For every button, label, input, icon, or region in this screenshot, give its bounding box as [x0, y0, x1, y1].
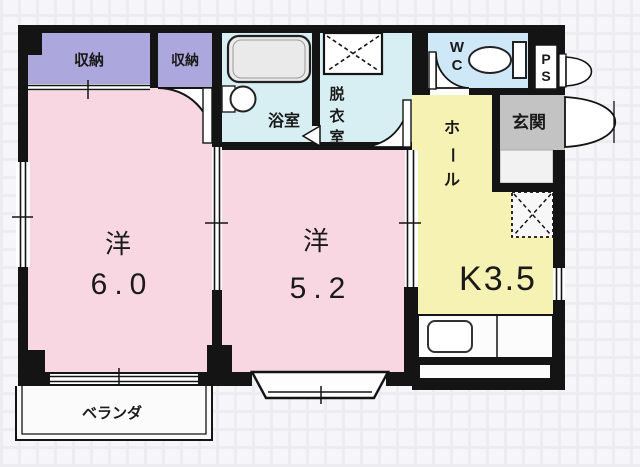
svg-text:ホ: ホ: [444, 119, 460, 137]
refrigerator-space: [512, 192, 553, 237]
bathtub: [228, 36, 310, 82]
wall-wc-bottom-left: [412, 88, 430, 95]
svg-text:室: 室: [329, 128, 344, 146]
wall-right-upper: [553, 150, 565, 268]
window-left: [12, 162, 33, 267]
svg-text:P: P: [541, 51, 550, 67]
svg-text:衣: 衣: [329, 107, 344, 125]
wall-below-step: [492, 183, 553, 192]
label-bathroom: 浴室: [268, 111, 300, 130]
label-storage-right: 収納: [171, 52, 199, 68]
svg-text:洋: 洋: [303, 226, 329, 256]
svg-text:S: S: [541, 68, 550, 84]
washbasin: [231, 87, 256, 112]
wall-left-upper: [18, 33, 28, 162]
label-genkan: 玄関: [512, 112, 546, 132]
label-ps: P S: [541, 51, 550, 84]
label-dressing: 脱 衣 室: [329, 85, 344, 146]
label-storage-left: 収納: [74, 51, 104, 69]
svg-text:洋: 洋: [105, 229, 131, 259]
wall-hall-room5-lower: [404, 287, 418, 372]
svg-text:C: C: [452, 57, 463, 74]
wall-room-divider-lower: [212, 290, 222, 372]
kitchen-bottom-ledge: [420, 365, 550, 378]
svg-text:脱: 脱: [329, 85, 344, 103]
label-veranda: ベランダ: [82, 404, 142, 422]
washing-machine-space: [324, 33, 382, 74]
label-kitchen: K3.5: [459, 260, 537, 298]
kitchen-sink: [428, 321, 472, 352]
wall-storage-divider: [150, 33, 158, 88]
room-western5-fill: [222, 150, 405, 372]
wall-dressing-wc: [412, 33, 428, 95]
svg-text:W: W: [450, 39, 465, 56]
svg-text:ル: ル: [444, 172, 460, 189]
wall-top: [18, 25, 565, 33]
svg-text:5.2: 5.2: [290, 272, 353, 305]
wall-genkan-left: [492, 95, 500, 192]
door-ps-swing: [566, 57, 592, 86]
floor-plan-svg: 収納 収納 浴室 脱 衣 室 W C P S 玄関 ホ ー ル K3.5 洋 6…: [0, 0, 640, 467]
door-entrance-main: [565, 97, 615, 147]
svg-text:ー: ー: [443, 147, 460, 163]
kitchen-counter: [418, 315, 553, 358]
window-kitchen-right: [553, 268, 565, 300]
bay-window: [252, 372, 388, 404]
ps-door-leaf: [559, 54, 566, 87]
floor-plan-canvas: 収納 収納 浴室 脱 衣 室 W C P S 玄関 ホ ー ル K3.5 洋 6…: [0, 0, 640, 467]
genkan-step: [500, 150, 553, 183]
wall-bath-dressing: [312, 33, 320, 126]
wall-right-lower: [553, 300, 565, 390]
wall-corner-block-bl: [18, 350, 45, 375]
label-hall: ホ ー ル: [443, 119, 460, 189]
svg-text:6.0: 6.0: [91, 268, 154, 301]
